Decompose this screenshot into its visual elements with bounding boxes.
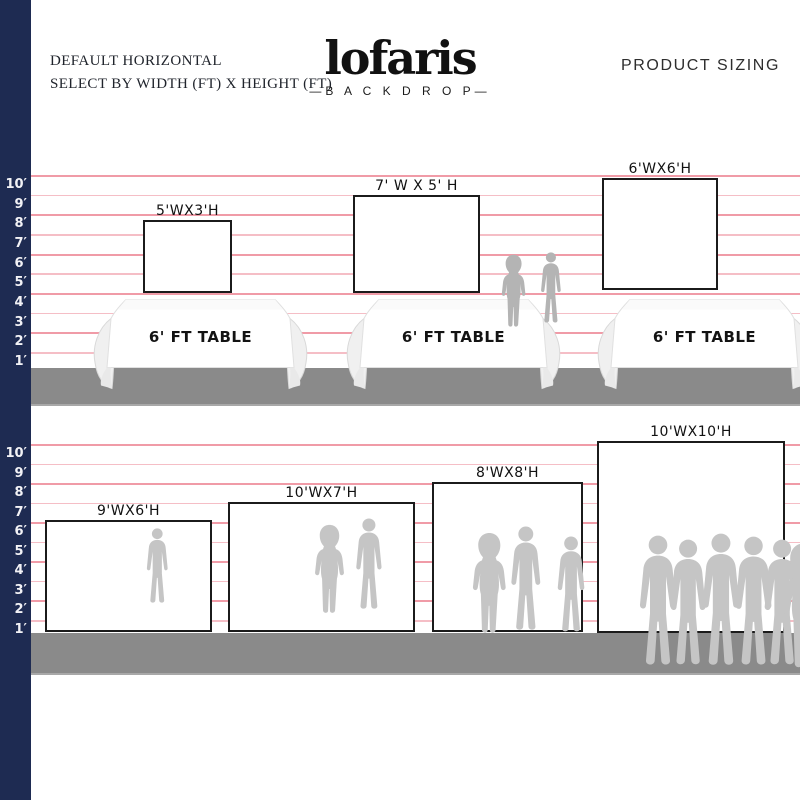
one-person-silhouette: [45, 520, 212, 650]
subtitle-line-2: SELECT BY WIDTH (FT) X HEIGHT (FT): [50, 73, 332, 96]
product-sizing-page: 10′9′8′7′6′5′4′3′2′1′ 10′9′8′7′6′5′4′3′2…: [0, 0, 800, 800]
ruler-foot-label: 5′: [0, 544, 27, 559]
backdrop-7x5: [353, 195, 480, 293]
ruler-foot-label: 6′: [0, 256, 27, 271]
ruler-foot-label: 5′: [0, 275, 27, 290]
ruler-foot-label: 7′: [0, 236, 27, 251]
ruler-foot-label: 2′: [0, 334, 27, 349]
three-person-silhouette: [432, 482, 583, 654]
backdrop-size-label: 10'WX10'H: [597, 424, 785, 440]
backdrop-size-label: 9'WX6'H: [45, 503, 212, 519]
ruler-foot-label: 1′: [0, 622, 27, 637]
ruler-foot-label: 6′: [0, 524, 27, 539]
ruler-foot-label: 3′: [0, 315, 27, 330]
ruler-foot-label: 10′: [0, 446, 27, 461]
ruler-bar: [0, 0, 31, 800]
backdrop-6x6: [602, 178, 718, 290]
banquet-table: 6' FT TABLE: [592, 296, 800, 392]
two-person-silhouette: [228, 502, 415, 650]
ruler-foot-label: 8′: [0, 485, 27, 500]
banquet-table: 6' FT TABLE: [88, 296, 313, 392]
ruler-foot-label: 1′: [0, 354, 27, 369]
ruler-foot-label: 9′: [0, 466, 27, 481]
ruler-foot-label: 9′: [0, 197, 27, 212]
ruler-foot-label: 10′: [0, 177, 27, 192]
logo-wordmark: lofaris: [300, 34, 500, 82]
backdrop-size-label: 6'WX6'H: [602, 161, 718, 177]
ruler-foot-label: 8′: [0, 216, 27, 231]
backdrop-size-label: 5'WX3'H: [143, 203, 232, 219]
ruler-foot-label: 4′: [0, 563, 27, 578]
backdrop-size-label: 8'WX8'H: [432, 465, 583, 481]
page-title: PRODUCT SIZING: [621, 57, 780, 75]
table-label: 6' FT TABLE: [592, 328, 800, 346]
logo-tagline: —B A C K D R O P—: [300, 84, 500, 98]
table-label: 6' FT TABLE: [88, 328, 313, 346]
backdrop-size-label: 10'WX7'H: [228, 485, 415, 501]
couple-silhouette: [480, 250, 572, 374]
subtitle-line-1: DEFAULT HORIZONTAL: [50, 50, 332, 73]
ruler-foot-label: 7′: [0, 505, 27, 520]
header-subtitle: DEFAULT HORIZONTAL SELECT BY WIDTH (FT) …: [50, 50, 332, 97]
backdrop-size-label: 7' W X 5' H: [353, 178, 480, 194]
group-silhouette: [597, 441, 787, 663]
brand-logo: lofaris —B A C K D R O P—: [300, 34, 500, 98]
backdrop-5x3: [143, 220, 232, 293]
ruler-foot-label: 3′: [0, 583, 27, 598]
ruler-foot-label: 2′: [0, 602, 27, 617]
grid-line-foot-mark: [31, 293, 800, 295]
ruler-foot-label: 4′: [0, 295, 27, 310]
